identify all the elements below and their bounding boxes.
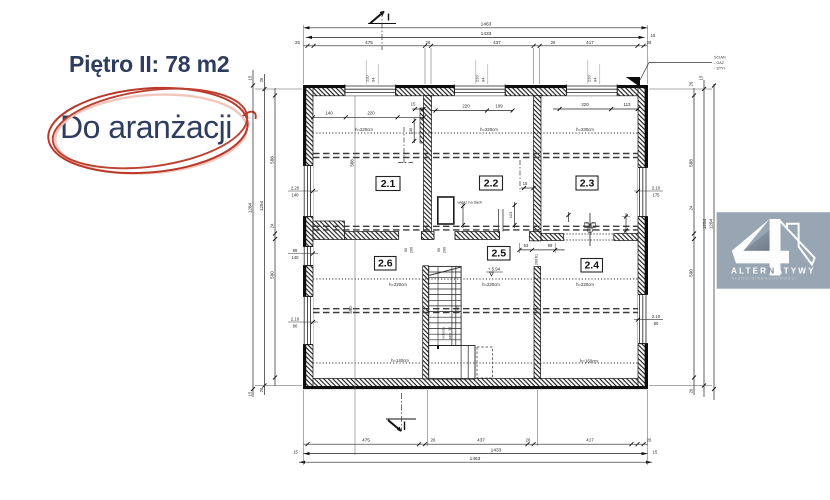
svg-text:2.3: 2.3 [580,177,595,189]
svg-text:2.20: 2.20 [291,186,300,191]
svg-text:15: 15 [523,181,528,186]
svg-text:h=160cm: h=160cm [580,358,598,363]
svg-text:140: 140 [325,110,333,115]
svg-text:588: 588 [270,156,275,164]
svg-text:220: 220 [365,75,370,82]
svg-text:220: 220 [581,102,589,107]
svg-text:15: 15 [293,449,298,454]
svg-text:szer. 90: szer. 90 [448,327,452,340]
svg-text:2.10: 2.10 [652,314,661,319]
svg-text:wyłaz na dach: wyłaz na dach [458,200,483,205]
svg-text:146: 146 [456,306,460,312]
svg-text:53: 53 [524,243,529,248]
svg-text:15: 15 [411,101,416,106]
svg-text:15: 15 [699,75,704,80]
svg-text:h=220cm: h=220cm [576,282,594,287]
svg-text:24: 24 [270,223,275,228]
svg-text:h=220cm: h=220cm [355,127,373,132]
svg-text:26: 26 [689,388,694,393]
svg-text:BIURO NIERUCHOMOŚCI: BIURO NIERUCHOMOŚCI [732,275,798,280]
svg-text:h=230cm: h=230cm [576,127,594,132]
svg-text:1284: 1284 [709,218,714,229]
svg-text:- GA2: - GA2 [714,61,724,65]
svg-text:ŚCIAN: ŚCIAN [714,55,726,60]
svg-text:80: 80 [654,321,659,326]
svg-text:200: 200 [410,247,414,253]
svg-text:475: 475 [365,40,373,45]
svg-text:2.10: 2.10 [291,317,300,322]
svg-text:2.10: 2.10 [652,186,661,191]
svg-text:588: 588 [689,159,694,167]
svg-text:220: 220 [367,110,375,115]
svg-text:26: 26 [259,77,264,82]
svg-text:h=220cm: h=220cm [480,127,498,132]
svg-text:417: 417 [586,438,594,443]
svg-text:200: 200 [534,259,538,265]
svg-text:26: 26 [259,387,264,392]
svg-text:417: 417 [586,40,594,45]
svg-text:h=140cm: h=140cm [391,358,409,363]
svg-text:90: 90 [404,248,408,252]
svg-text:1433: 1433 [491,448,502,454]
svg-text:1463: 1463 [470,456,481,462]
svg-text:590: 590 [689,269,694,277]
svg-text:590: 590 [348,306,353,314]
svg-text:2.1: 2.1 [381,178,396,190]
svg-text:1284: 1284 [248,202,253,213]
svg-text:2.4: 2.4 [584,260,599,272]
svg-text:123: 123 [508,212,513,219]
svg-text:1254: 1254 [702,218,707,229]
svg-text:590: 590 [270,271,275,279]
svg-text:1254: 1254 [259,200,264,211]
svg-text:2.5: 2.5 [491,248,506,260]
svg-text:1463: 1463 [481,22,492,28]
svg-text:175: 175 [653,193,661,198]
svg-text:h=220cm: h=220cm [389,282,407,287]
svg-text:ALTERNATYWY: ALTERNATYWY [731,267,816,276]
svg-text:15: 15 [651,33,656,38]
svg-text:109: 109 [495,104,503,109]
svg-text:99: 99 [548,243,553,248]
svg-text:26: 26 [295,40,300,45]
svg-text:80: 80 [293,324,298,329]
svg-text:24: 24 [689,205,694,210]
svg-text:schody: schody [442,327,446,339]
svg-text:h=220cm: h=220cm [482,282,500,287]
svg-text:15: 15 [248,75,253,80]
svg-text:1433: 1433 [481,31,492,37]
svg-text:26: 26 [526,438,531,443]
svg-text:15: 15 [248,391,253,396]
svg-text:15: 15 [653,449,658,454]
svg-text:26: 26 [426,40,431,45]
svg-text:2.2: 2.2 [484,177,499,189]
svg-text:86: 86 [293,248,298,253]
svg-text:94: 94 [371,77,376,82]
svg-text:140: 140 [292,255,300,260]
svg-text:26: 26 [551,40,556,45]
svg-text:61: 61 [534,254,538,258]
svg-text:+ 5.94: + 5.94 [488,267,501,272]
svg-text:113: 113 [624,102,632,107]
svg-text:90: 90 [437,248,441,252]
svg-text:220: 220 [474,75,479,82]
svg-text:94: 94 [592,77,597,82]
svg-text:2.6: 2.6 [378,258,393,270]
svg-text:26: 26 [689,81,694,86]
svg-text:26: 26 [431,438,436,443]
svg-text:136: 136 [408,128,413,135]
svg-text:220: 220 [586,75,591,82]
svg-text:- STYI: - STYI [714,67,725,71]
svg-text:437: 437 [493,40,501,45]
svg-text:220: 220 [462,104,470,109]
svg-text:200: 200 [443,247,447,253]
svg-text:437: 437 [477,438,485,443]
svg-text:94: 94 [480,77,485,82]
svg-text:588: 588 [350,159,355,167]
svg-text:475: 475 [362,438,370,443]
svg-text:140: 140 [292,193,300,198]
